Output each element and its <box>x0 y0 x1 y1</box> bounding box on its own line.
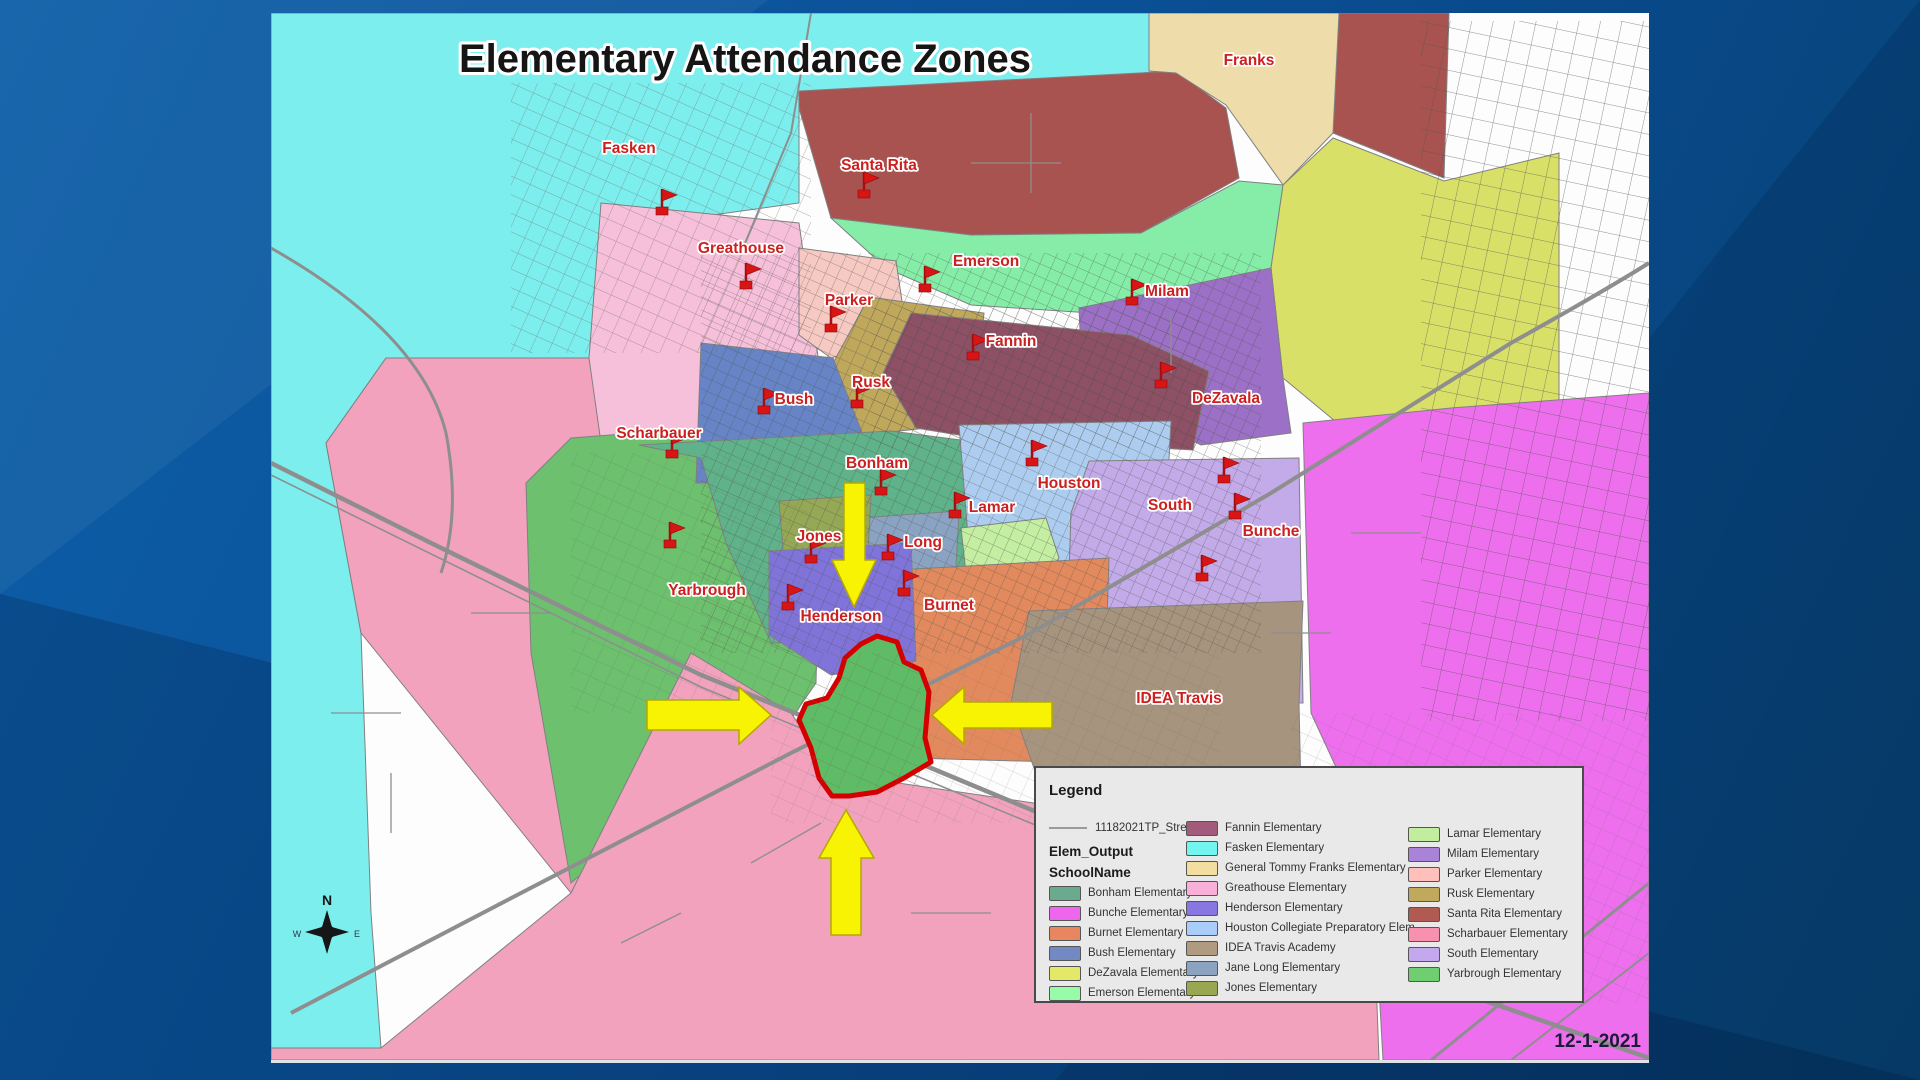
legend-column: Lamar ElementaryMilam ElementaryParker E… <box>1408 824 1568 984</box>
legend-color-swatch <box>1049 986 1081 1001</box>
legend-entry-label: Parker Elementary <box>1447 868 1542 880</box>
legend-entry: Houston Collegiate Preparatory Elem <box>1186 918 1415 938</box>
school-label-franks: Franks <box>1224 52 1275 69</box>
map-date: 12-1-2021 <box>1554 1031 1641 1052</box>
svg-text:W: W <box>293 929 302 939</box>
legend-entry-label: Fannin Elementary <box>1225 822 1322 834</box>
school-label-yarbrough: Yarbrough <box>668 582 746 599</box>
legend-entry: General Tommy Franks Elementary <box>1186 858 1415 878</box>
legend-color-swatch <box>1049 946 1081 961</box>
legend-color-swatch <box>1186 941 1218 956</box>
legend-entry: Fasken Elementary <box>1186 838 1415 858</box>
legend-entry: South Elementary <box>1408 944 1568 964</box>
school-label-dezavala: DeZavala <box>1192 390 1260 407</box>
legend-color-swatch <box>1049 886 1081 901</box>
school-label-rusk: Rusk <box>852 374 890 391</box>
legend-entry: Bunche Elementary <box>1049 903 1199 923</box>
legend-color-swatch <box>1186 841 1218 856</box>
legend-entry-label: IDEA Travis Academy <box>1225 942 1336 954</box>
legend-entry: Santa Rita Elementary <box>1408 904 1568 924</box>
street-grid-highlight <box>811 653 921 788</box>
map-title: Elementary Attendance Zones <box>459 37 1031 81</box>
legend-entry: Jones Elementary <box>1186 978 1415 998</box>
school-label-bunche: Bunche <box>1243 523 1300 540</box>
legend-entry-label: Rusk Elementary <box>1447 888 1535 900</box>
legend-entry: Fannin Elementary <box>1186 818 1415 838</box>
legend-entry-label: Henderson Elementary <box>1225 902 1343 914</box>
legend-color-swatch <box>1186 961 1218 976</box>
school-label-henderson: Henderson <box>801 608 882 625</box>
legend-entry-label: Fasken Elementary <box>1225 842 1324 854</box>
legend-color-swatch <box>1408 847 1440 862</box>
school-label-jones: Jones <box>797 528 842 545</box>
school-label-bonham: Bonham <box>846 455 908 472</box>
school-label-idea-travis: IDEA Travis <box>1136 690 1222 707</box>
school-label-fannin: Fannin <box>986 333 1037 350</box>
school-label-scharbauer: Scharbauer <box>616 425 701 442</box>
legend-entry-label: Houston Collegiate Preparatory Elem <box>1225 922 1415 934</box>
legend-color-swatch <box>1408 947 1440 962</box>
school-label-houston: Houston <box>1038 475 1101 492</box>
legend-entry: Parker Elementary <box>1408 864 1568 884</box>
legend-entry-label: DeZavala Elementary <box>1088 967 1199 979</box>
legend-entry-label: Santa Rita Elementary <box>1447 908 1562 920</box>
legend-column: Fannin ElementaryFasken ElementaryGenera… <box>1186 818 1415 998</box>
legend-color-swatch <box>1186 901 1218 916</box>
school-label-greathouse: Greathouse <box>698 240 785 257</box>
legend-entry: Jane Long Elementary <box>1186 958 1415 978</box>
school-label-fasken: Fasken <box>602 140 655 157</box>
legend-entry-label: Burnet Elementary <box>1088 927 1183 939</box>
school-label-south: South <box>1148 497 1192 514</box>
legend-entry-label: Bunche Elementary <box>1088 907 1188 919</box>
street-layer-label: 11182021TP_Street <box>1095 822 1196 834</box>
school-label-burnet: Burnet <box>924 597 974 614</box>
legend-color-swatch <box>1049 926 1081 941</box>
legend-column: Bonham ElementaryBunche ElementaryBurnet… <box>1049 883 1199 1003</box>
legend-street-row: 11182021TP_Street <box>1049 820 1196 836</box>
legend-entry: Greathouse Elementary <box>1186 878 1415 898</box>
legend-entry: IDEA Travis Academy <box>1186 938 1415 958</box>
legend-color-swatch <box>1186 821 1218 836</box>
legend-entry: Scharbauer Elementary <box>1408 924 1568 944</box>
map-legend: Legend 11182021TP_Street Elem_Output Sch… <box>1034 766 1584 1003</box>
attendance-zone-map: FaskenSanta RitaGreathouseEmersonParkerM… <box>271 13 1649 1063</box>
school-label-emerson: Emerson <box>953 253 1019 270</box>
school-label-lamar: Lamar <box>969 499 1016 516</box>
legend-entry-label: Emerson Elementary <box>1088 987 1195 999</box>
legend-entry-label: Milam Elementary <box>1447 848 1539 860</box>
legend-color-swatch <box>1049 966 1081 981</box>
svg-text:E: E <box>354 929 360 939</box>
legend-entry: DeZavala Elementary <box>1049 963 1199 983</box>
school-label-bush: Bush <box>775 391 814 408</box>
legend-entry-label: Yarbrough Elementary <box>1447 968 1561 980</box>
svg-text:N: N <box>322 892 332 908</box>
zone-santa-rita <box>799 71 1239 235</box>
legend-title: Legend <box>1049 782 1102 799</box>
legend-entry: Burnet Elementary <box>1049 923 1199 943</box>
legend-entry-label: Lamar Elementary <box>1447 828 1541 840</box>
school-label-santa-rita: Santa Rita <box>841 157 917 174</box>
legend-entry: Yarbrough Elementary <box>1408 964 1568 984</box>
school-label-long: Long <box>904 534 942 551</box>
legend-entry: Bush Elementary <box>1049 943 1199 963</box>
legend-color-swatch <box>1408 827 1440 842</box>
school-label-milam: Milam <box>1145 283 1189 300</box>
legend-color-swatch <box>1408 967 1440 982</box>
legend-color-swatch <box>1186 861 1218 876</box>
legend-entry: Bonham Elementary <box>1049 883 1199 903</box>
legend-entry: Lamar Elementary <box>1408 824 1568 844</box>
legend-color-swatch <box>1049 906 1081 921</box>
street-line-symbol <box>1049 827 1087 829</box>
legend-color-swatch <box>1408 907 1440 922</box>
legend-color-swatch <box>1186 881 1218 896</box>
broadcast-background: FaskenSanta RitaGreathouseEmersonParkerM… <box>0 0 1920 1080</box>
legend-entry-label: General Tommy Franks Elementary <box>1225 862 1406 874</box>
legend-entry-label: Jones Elementary <box>1225 982 1317 994</box>
legend-color-swatch <box>1408 927 1440 942</box>
legend-entry: Henderson Elementary <box>1186 898 1415 918</box>
legend-entry-label: Bush Elementary <box>1088 947 1176 959</box>
legend-entry-label: Bonham Elementary <box>1088 887 1192 899</box>
legend-color-swatch <box>1186 981 1218 996</box>
legend-entry-label: South Elementary <box>1447 948 1538 960</box>
legend-entry-label: Jane Long Elementary <box>1225 962 1340 974</box>
legend-entry: Rusk Elementary <box>1408 884 1568 904</box>
legend-entry-label: Greathouse Elementary <box>1225 882 1346 894</box>
legend-entry: Emerson Elementary <box>1049 983 1199 1003</box>
legend-color-swatch <box>1408 887 1440 902</box>
legend-entry: Milam Elementary <box>1408 844 1568 864</box>
school-label-parker: Parker <box>825 292 873 309</box>
legend-entry-label: Scharbauer Elementary <box>1447 928 1568 940</box>
legend-field-name: SchoolName <box>1049 865 1131 880</box>
legend-color-swatch <box>1186 921 1218 936</box>
legend-color-swatch <box>1408 867 1440 882</box>
legend-layer-name: Elem_Output <box>1049 844 1133 859</box>
